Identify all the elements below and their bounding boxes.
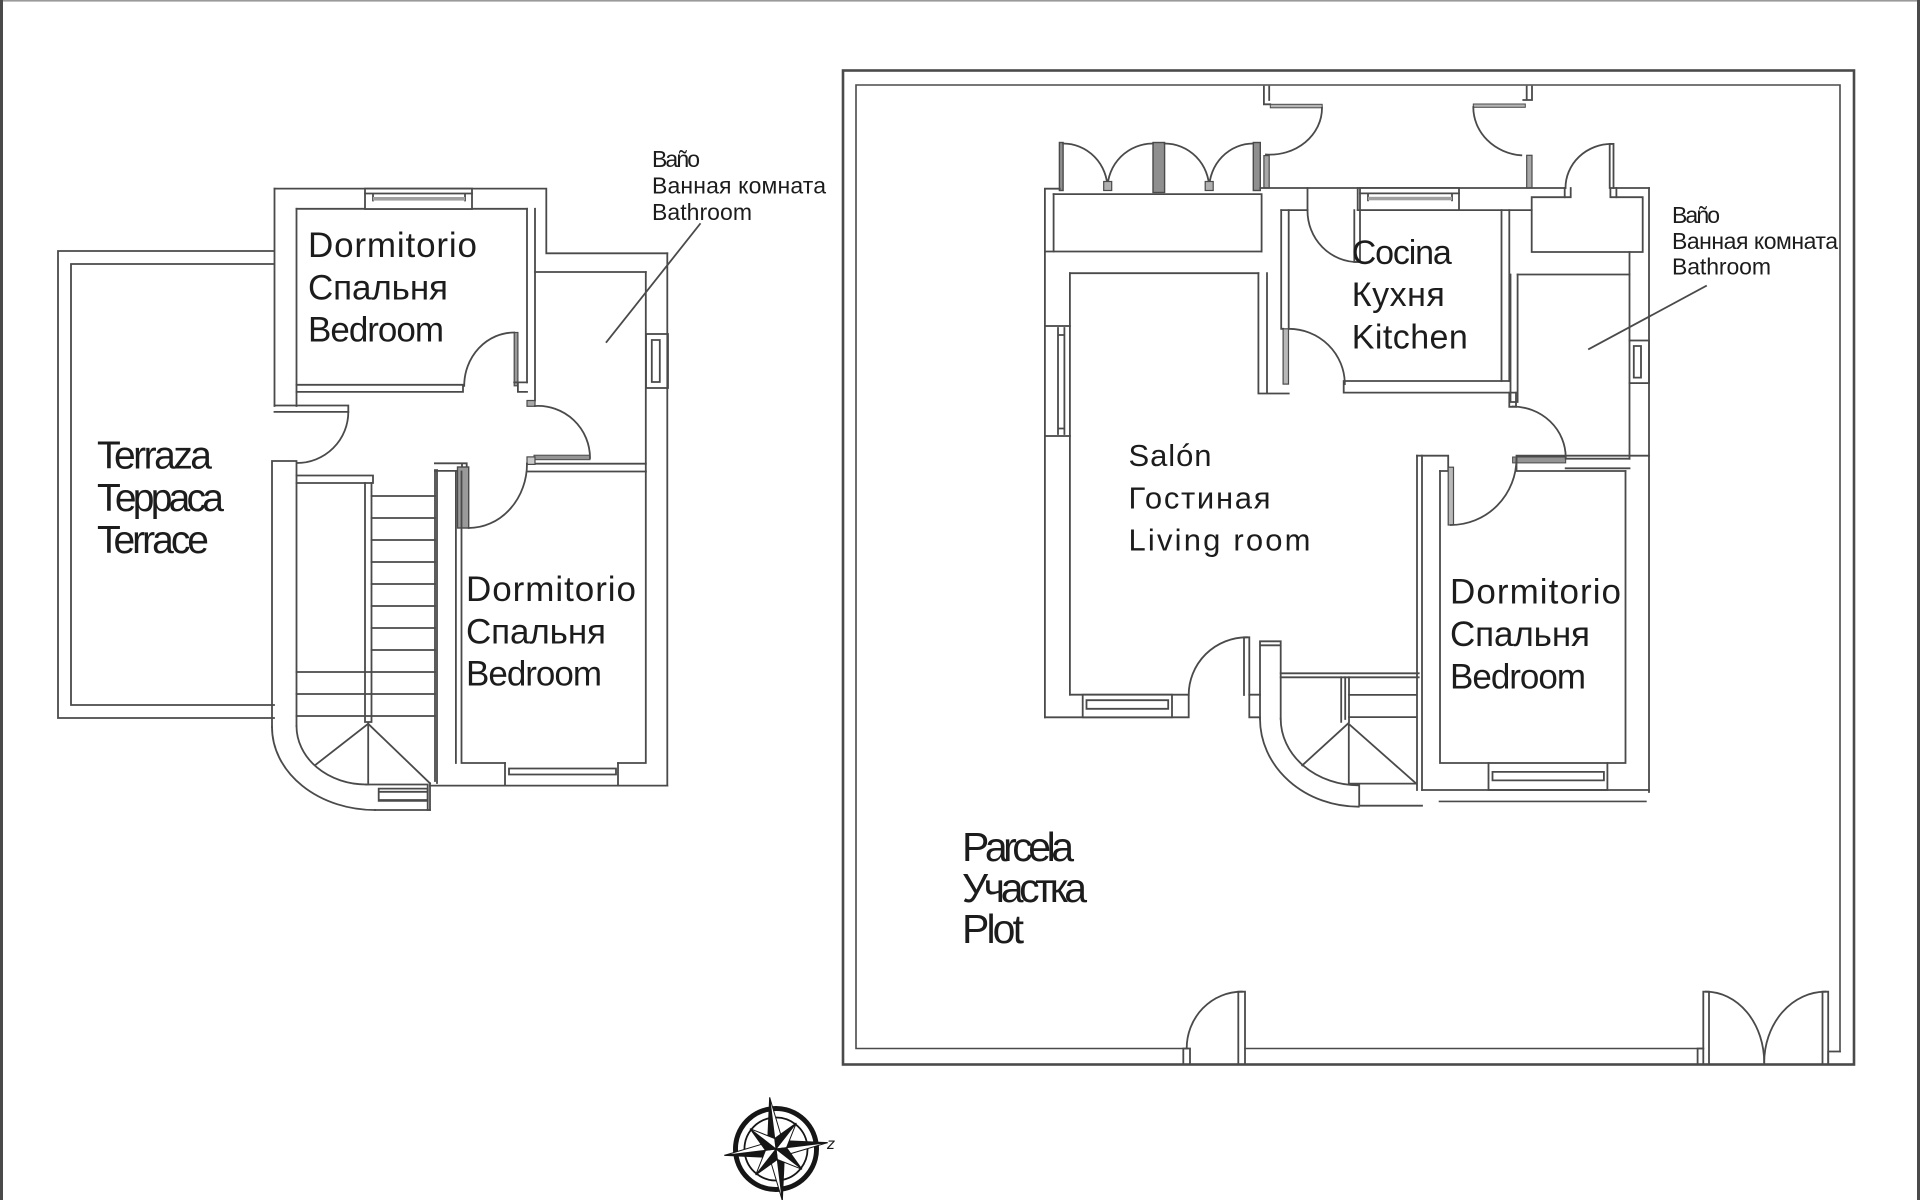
svg-text:z: z — [826, 1136, 835, 1153]
svg-text:Bedroom: Bedroom — [308, 311, 444, 350]
svg-text:Ванная комната: Ванная комната — [652, 173, 826, 199]
svg-text:Cocina: Cocina — [1352, 234, 1452, 272]
svg-text:Участка: Участка — [962, 865, 1087, 911]
svg-text:Plot: Plot — [962, 906, 1025, 952]
svg-text:Parcela: Parcela — [962, 824, 1074, 870]
svg-text:Salón: Salón — [1129, 438, 1212, 473]
svg-text:Спальня: Спальня — [466, 612, 606, 651]
svg-text:Terrace: Terrace — [97, 519, 209, 562]
svg-text:Bathroom: Bathroom — [652, 199, 752, 225]
svg-text:Спальня: Спальня — [1450, 615, 1590, 654]
svg-text:Спальня: Спальня — [308, 268, 448, 307]
svg-text:Terraza: Terraza — [97, 435, 212, 478]
svg-text:Гостиная: Гостиная — [1129, 480, 1271, 515]
svg-text:Baño: Baño — [652, 146, 700, 172]
svg-text:Bedroom: Bedroom — [466, 655, 602, 694]
svg-text:Ванная комната: Ванная комната — [1672, 228, 1838, 254]
svg-text:Kitchen: Kitchen — [1352, 318, 1468, 356]
svg-text:Bedroom: Bedroom — [1450, 657, 1586, 696]
svg-text:Терраса: Терраса — [97, 477, 224, 520]
svg-text:Baño: Baño — [1672, 202, 1720, 228]
svg-text:Dormitorio: Dormitorio — [1450, 573, 1621, 612]
svg-text:Кухня: Кухня — [1352, 276, 1445, 314]
svg-text:Dormitorio: Dormitorio — [466, 570, 636, 609]
svg-text:Bathroom: Bathroom — [1672, 254, 1771, 280]
svg-text:Dormitorio: Dormitorio — [308, 226, 477, 265]
